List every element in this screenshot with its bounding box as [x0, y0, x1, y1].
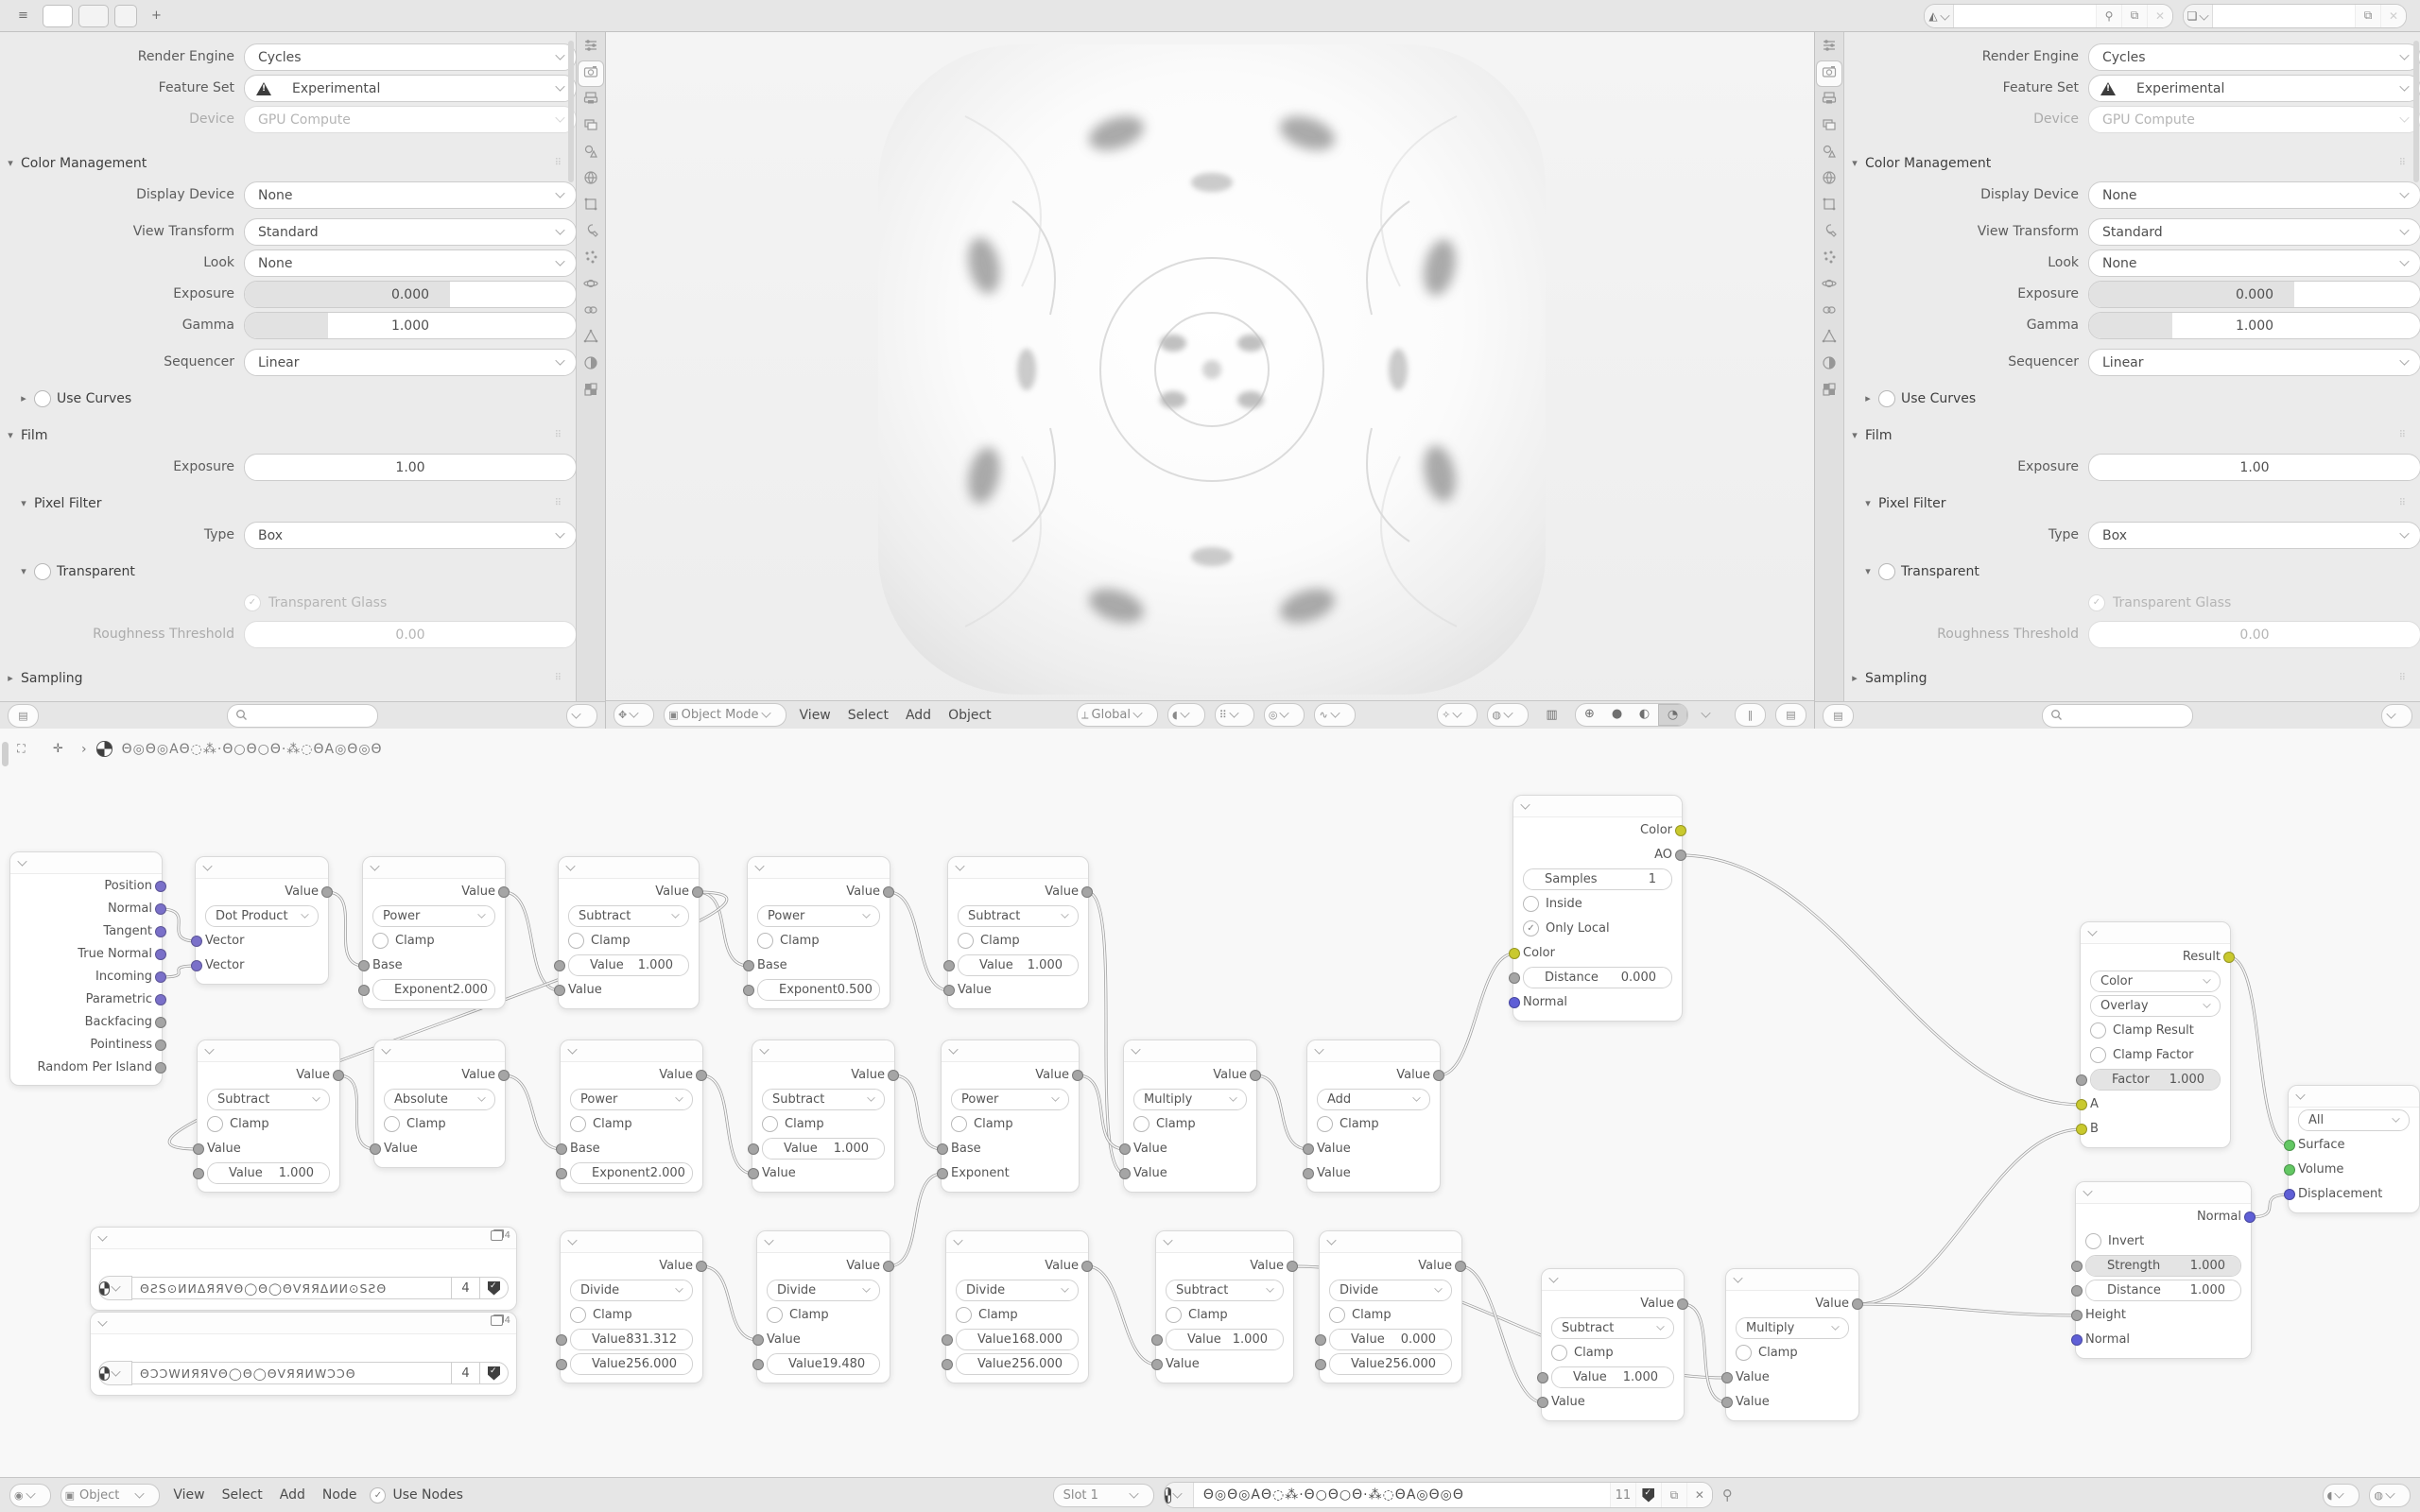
output-socket-incoming[interactable]	[155, 971, 166, 983]
checkbox[interactable]	[2090, 1047, 2106, 1063]
shading-rendered-icon[interactable]: ◔	[1658, 704, 1687, 726]
node-subA[interactable]: ValueSubtractClampValueValue1.000	[197, 1039, 340, 1193]
menu-select[interactable]: Select	[844, 708, 892, 723]
checkbox[interactable]	[1736, 1345, 1752, 1361]
checkbox[interactable]	[958, 933, 974, 949]
input-socket-value[interactable]	[554, 985, 565, 996]
input-socket-factor[interactable]	[2076, 1074, 2087, 1086]
node-header[interactable]	[1156, 1231, 1293, 1253]
filter-toggles-icon[interactable]: ▤	[1823, 704, 1854, 728]
checkbox[interactable]	[1878, 563, 1895, 580]
node-ao[interactable]: ColorAOSamples1Inside✓Only LocalColorDis…	[1512, 795, 1683, 1022]
node-header[interactable]	[748, 857, 890, 879]
transform-orientation-dropdown[interactable]: ⟂Global	[1077, 703, 1158, 727]
users-count-button[interactable]: 4	[452, 1362, 480, 1384]
node-dropdown[interactable]: Subtract	[1166, 1280, 1284, 1301]
node-dropdown[interactable]: Subtract	[568, 905, 689, 927]
node-subE[interactable]: ValueSubtractClampValue1.000Value	[1541, 1268, 1685, 1421]
dropdown-look[interactable]: None	[2088, 249, 2420, 277]
output-socket-value[interactable]	[333, 1070, 344, 1081]
input-socket-value[interactable]	[1303, 1143, 1314, 1155]
properties-tab-physics[interactable]	[579, 273, 603, 298]
slider-exposure[interactable]: 0.000	[244, 281, 576, 308]
input-socket-value[interactable]	[748, 1168, 759, 1179]
node-value-field[interactable]: Value256.000	[1329, 1353, 1452, 1375]
properties-tab-output[interactable]	[1817, 88, 1841, 112]
panel-header-pixel-filter[interactable]: ▾Pixel Filter⠿	[0, 488, 576, 519]
input-socket-exponent[interactable]	[556, 1168, 567, 1179]
panel-header-use-curves[interactable]: ▸Use Curves	[0, 383, 576, 414]
input-socket-value[interactable]	[942, 1334, 953, 1346]
node-header[interactable]	[752, 1040, 894, 1062]
checkbox[interactable]	[372, 933, 389, 949]
input-socket-value[interactable]	[748, 1143, 759, 1155]
checkbox[interactable]	[757, 933, 773, 949]
viewport-canvas[interactable]	[606, 31, 1814, 700]
checkbox[interactable]	[384, 1116, 400, 1132]
properties-tab-object[interactable]	[579, 194, 603, 218]
output-socket-value[interactable]	[321, 886, 333, 898]
output-socket-value[interactable]	[888, 1070, 899, 1081]
snapping-magnet-icon[interactable]: ◖	[1167, 703, 1205, 727]
input-socket-value[interactable]	[1537, 1397, 1548, 1408]
properties-tab-viewlayer[interactable]	[579, 114, 603, 139]
properties-tab-material[interactable]	[579, 352, 603, 377]
menu-view[interactable]: View	[796, 708, 835, 723]
dropdown-type[interactable]: Box	[2088, 522, 2420, 549]
panel-header-pixel-filter[interactable]: ▾Pixel Filter⠿	[1844, 488, 2420, 519]
node-header[interactable]	[948, 857, 1088, 879]
node-texA[interactable]: 4ΘƧS⊙ИИΔЯЯVΘ◯Θ◯ΘVЯЯΔИИ⊙SƧΘ4	[90, 1227, 517, 1311]
node-dropdown[interactable]: Power	[951, 1089, 1069, 1110]
input-socket-value[interactable]	[193, 1143, 204, 1155]
copy-icon[interactable]: ⧉	[2121, 5, 2147, 27]
node-dropdown[interactable]: Divide	[1329, 1280, 1452, 1301]
input-socket-value[interactable]	[1537, 1372, 1548, 1383]
render-display-options-icon[interactable]: ▤	[1775, 703, 1806, 727]
datablock-name-field[interactable]: ΘƆƆWИЯЯVΘ◯Θ◯ΘVЯЯИWƆƆΘ	[132, 1362, 452, 1384]
input-socket-volume[interactable]	[2284, 1164, 2295, 1176]
node-mix[interactable]: ResultColorOverlayClamp ResultClamp Fact…	[2080, 921, 2231, 1148]
dropdown-view-transform[interactable]: Standard	[244, 218, 576, 246]
checkbox[interactable]	[1133, 1116, 1149, 1132]
input-socket-strength[interactable]	[2071, 1261, 2083, 1272]
input-socket-value[interactable]	[1151, 1359, 1163, 1370]
node-out[interactable]: AllSurfaceVolumeDisplacement	[2288, 1085, 2420, 1213]
output-socket-color[interactable]	[1675, 825, 1686, 836]
input-socket-value[interactable]	[556, 1334, 567, 1346]
move-icon[interactable]: ✛	[44, 738, 72, 760]
overlay-icon[interactable]: ◍	[2369, 1484, 2411, 1507]
input-socket-value[interactable]	[943, 985, 955, 996]
input-socket-surface[interactable]	[2284, 1140, 2295, 1151]
node-abs[interactable]: ValueAbsoluteClampValue	[373, 1039, 506, 1168]
panel-header-sampling[interactable]: ▸Sampling⠿	[1844, 662, 2420, 694]
shader-node-editor[interactable]: ⛶ ✛ › Θ◎Θ◎ΑΘ◌⁂·Θ○Θ○Θ·⁂◌ΘΑ◎Θ◎Θ PositionNo…	[0, 729, 2420, 1512]
properties-tab-data[interactable]	[1817, 326, 1841, 351]
checkbox[interactable]: ✓	[2088, 594, 2105, 611]
close-icon[interactable]: ✕	[2147, 5, 2172, 27]
output-socket-value[interactable]	[1250, 1070, 1261, 1081]
properties-tab-tool[interactable]	[1817, 35, 1841, 60]
viewlayer-icon[interactable]: ❏	[2184, 5, 2213, 27]
node-header[interactable]	[2076, 1182, 2251, 1204]
scene-icon[interactable]: ◭	[1925, 5, 1954, 27]
pause-button[interactable]: ‖	[1735, 703, 1766, 727]
input-socket-normal[interactable]	[1509, 997, 1520, 1008]
dropdown-display-device[interactable]: None	[2088, 181, 2420, 209]
node-dropdown[interactable]: Add	[1317, 1089, 1430, 1110]
pin-icon[interactable]: ⚲	[1722, 1486, 1733, 1503]
properties-tab-particles[interactable]	[1817, 247, 1841, 271]
node-value-field[interactable]: Value1.000	[1551, 1366, 1674, 1388]
dropdown-view-transform[interactable]: Standard	[2088, 218, 2420, 246]
node-dropdown[interactable]: Color	[2090, 971, 2221, 992]
3d-viewport-editor-icon[interactable]: ✥	[614, 703, 654, 727]
input-socket-value[interactable]	[1315, 1334, 1326, 1346]
node-dropdown[interactable]: Absolute	[384, 1089, 495, 1110]
workspace-tab-2[interactable]	[78, 5, 109, 27]
menu-object[interactable]: Object	[944, 708, 995, 723]
output-socket-value[interactable]	[1455, 1261, 1466, 1272]
search-input[interactable]	[227, 704, 378, 728]
node-sub1b[interactable]: ValueSubtractClampValue1.000Value	[947, 856, 1089, 1009]
checkbox[interactable]: ✓	[244, 594, 261, 611]
node-dropdown[interactable]: Subtract	[207, 1089, 330, 1110]
output-socket-normal[interactable]	[155, 903, 166, 915]
checkbox[interactable]	[2085, 1233, 2101, 1249]
node-header[interactable]	[559, 857, 699, 879]
pin-icon[interactable]: ⚲	[2096, 5, 2121, 27]
dropdown-sequencer[interactable]: Linear	[244, 349, 576, 376]
snap-target-icon[interactable]: ⠿	[1215, 703, 1254, 727]
input-socket-distance[interactable]	[2071, 1285, 2083, 1297]
output-socket-value[interactable]	[1081, 886, 1093, 898]
use-nodes-toggle[interactable]: ✓Use Nodes	[370, 1487, 462, 1503]
node-value-field[interactable]: Factor1.000	[2090, 1069, 2221, 1091]
node-header[interactable]	[198, 1040, 339, 1062]
node-header[interactable]	[2289, 1086, 2419, 1108]
node-header[interactable]	[2081, 922, 2230, 944]
output-socket-backfacing[interactable]	[155, 1017, 166, 1028]
checkbox[interactable]	[956, 1307, 972, 1323]
slider-exposure[interactable]: 0.000	[2088, 281, 2420, 308]
checkbox[interactable]	[1329, 1307, 1345, 1323]
dropdown-device[interactable]: GPU Compute	[244, 106, 576, 133]
node-dropdown[interactable]: Subtract	[762, 1089, 885, 1110]
falloff-curve-icon[interactable]: ∿	[1314, 703, 1355, 727]
shading-solid-icon[interactable]: ●	[1603, 704, 1631, 724]
properties-tab-scene[interactable]	[579, 141, 603, 165]
node-dropdown[interactable]: Divide	[767, 1280, 880, 1301]
output-socket-value[interactable]	[498, 886, 510, 898]
workspace-tab-1[interactable]	[43, 5, 73, 27]
panel-header-color-management[interactable]: ▾Color Management⠿	[0, 147, 576, 179]
checkbox[interactable]	[951, 1116, 967, 1132]
input-socket-value[interactable]	[193, 1168, 204, 1179]
properties-tab-output[interactable]	[579, 88, 603, 112]
menu-view[interactable]: View	[169, 1487, 208, 1503]
properties-tab-data[interactable]	[579, 326, 603, 351]
node-geo[interactable]: PositionNormalTangentTrue NormalIncoming…	[9, 851, 163, 1086]
properties-tab-object[interactable]	[1817, 194, 1841, 218]
workspace-tab-3[interactable]	[114, 5, 137, 27]
node-value-field[interactable]: Strength1.000	[2085, 1255, 2241, 1277]
mode-dropdown[interactable]: ▣Object Mode	[664, 703, 786, 727]
slider-exposure[interactable]: 1.00	[2088, 454, 2420, 481]
node-bump[interactable]: NormalInvertStrength1.000Distance1.000He…	[2075, 1181, 2252, 1359]
checkbox[interactable]	[762, 1116, 778, 1132]
menu-add[interactable]: Add	[276, 1487, 309, 1503]
input-socket-value[interactable]	[943, 960, 955, 971]
filter-toggles-icon[interactable]: ▤	[8, 704, 39, 728]
input-socket-base[interactable]	[743, 960, 754, 971]
node-dropdown[interactable]: Divide	[956, 1280, 1079, 1301]
output-socket-value[interactable]	[1072, 1070, 1083, 1081]
node-header[interactable]	[363, 857, 505, 879]
output-socket-tangent[interactable]	[155, 926, 166, 937]
input-socket-color[interactable]	[1509, 948, 1520, 959]
proportional-editing-icon[interactable]: ◎	[1264, 703, 1305, 727]
properties-tab-modifiers[interactable]	[579, 220, 603, 245]
node-divA[interactable]: ValueDivideClampValue831.312Value256.000	[560, 1230, 703, 1383]
output-socket-result[interactable]	[2223, 952, 2235, 963]
dropdown-type[interactable]: Box	[244, 522, 576, 549]
node-divD[interactable]: ValueDivideClampValue0.000Value256.000	[1319, 1230, 1462, 1383]
output-socket-value[interactable]	[1852, 1298, 1863, 1310]
node-dropdown[interactable]: Subtract	[1551, 1317, 1674, 1339]
add-workspace-button[interactable]: +	[143, 5, 170, 26]
node-dot[interactable]: ValueDot ProductVectorVector	[195, 856, 329, 985]
panel-header-transparent[interactable]: ▾Transparent	[1844, 556, 2420, 587]
panel-header-sampling[interactable]: ▸Sampling⠿	[0, 662, 576, 694]
dropdown-device[interactable]: GPU Compute	[2088, 106, 2420, 133]
node-powB[interactable]: ValuePowerClampBaseExponent2.000	[560, 1039, 703, 1193]
close-icon[interactable]: ✕	[1686, 1483, 1712, 1507]
panel-header-use-curves[interactable]: ▸Use Curves	[1844, 383, 2420, 414]
node-header[interactable]	[757, 1231, 890, 1253]
node-header[interactable]	[561, 1231, 702, 1253]
input-socket-base[interactable]	[937, 1143, 948, 1155]
input-socket-value[interactable]	[1119, 1143, 1131, 1155]
checkbox[interactable]	[1523, 896, 1539, 912]
input-socket-exponent[interactable]	[743, 985, 754, 996]
select-box-icon[interactable]: ⛶	[8, 738, 35, 760]
checkbox[interactable]	[34, 563, 51, 580]
output-socket-value[interactable]	[498, 1070, 510, 1081]
material-name-field[interactable]: Θ◎Θ◎ΑΘ◌⁂·Θ○Θ○Θ·⁂◌ΘΑ◎Θ◎Θ	[1194, 1483, 1610, 1507]
checkbox[interactable]: ✓	[1523, 920, 1539, 936]
dropdown-feature-set[interactable]: Experimental	[244, 75, 576, 102]
properties-tab-constraints[interactable]	[579, 300, 603, 324]
node-value-field[interactable]: Distance1.000	[2085, 1280, 2241, 1301]
output-socket-value[interactable]	[1677, 1298, 1688, 1310]
viewlayer-selector[interactable]: ❏ ⧉ ✕	[2183, 4, 2407, 28]
node-header[interactable]	[946, 1231, 1088, 1253]
node-dropdown[interactable]: Multiply	[1133, 1089, 1247, 1110]
node-dropdown[interactable]: Subtract	[958, 905, 1079, 927]
properties-tab-world[interactable]	[1817, 167, 1841, 192]
node-dropdown[interactable]: Multiply	[1736, 1317, 1849, 1339]
hamburger-menu-icon[interactable]: ≡	[9, 5, 37, 26]
node-value-field[interactable]: Value1.000	[207, 1162, 330, 1184]
node-header[interactable]	[561, 1040, 702, 1062]
input-socket-value[interactable]	[370, 1143, 381, 1155]
node-value-field[interactable]: Distance0.000	[1523, 967, 1672, 988]
fake-user-shield-icon[interactable]	[1635, 1483, 1661, 1507]
input-socket-base[interactable]	[358, 960, 370, 971]
browse-material-icon[interactable]	[98, 1276, 132, 1300]
users-count-button[interactable]: 4	[452, 1277, 480, 1299]
node-header[interactable]	[1542, 1269, 1684, 1291]
node-dropdown[interactable]: All	[2298, 1109, 2410, 1131]
input-socket-vector[interactable]	[191, 960, 202, 971]
output-socket-pointiness[interactable]	[155, 1039, 166, 1051]
properties-tab-texture[interactable]	[1817, 379, 1841, 404]
input-socket-value[interactable]	[1151, 1334, 1163, 1346]
output-socket-random-per-island[interactable]	[155, 1062, 166, 1074]
node-value-field[interactable]: Value168.000	[956, 1329, 1079, 1350]
input-socket-base[interactable]	[556, 1143, 567, 1155]
node-value-field[interactable]: Value1.000	[762, 1138, 885, 1160]
checkbox[interactable]	[1878, 390, 1895, 407]
toggle-xray-icon[interactable]: ▥	[1538, 704, 1565, 726]
output-socket-value[interactable]	[696, 1070, 707, 1081]
node-pow2[interactable]: ValuePowerClampBaseExponent2.000	[362, 856, 506, 1009]
properties-tab-render[interactable]	[579, 61, 603, 86]
node-header[interactable]	[1307, 1040, 1440, 1062]
viewlayer-name-field[interactable]	[2213, 5, 2355, 27]
checkbox[interactable]	[570, 1116, 586, 1132]
node-header[interactable]	[374, 1040, 505, 1062]
node-subC[interactable]: ValueSubtractClampValue1.000Value	[752, 1039, 895, 1193]
node-mulA[interactable]: ValueMultiplyClampValueValue	[1123, 1039, 1257, 1193]
slider-exposure[interactable]: 1.00	[244, 454, 576, 481]
node-header[interactable]	[1513, 796, 1682, 817]
show-overlays-icon[interactable]: ◍	[1487, 703, 1529, 727]
snapping-magnet-icon[interactable]: ◖	[2323, 1484, 2360, 1507]
scrollbar[interactable]	[568, 41, 574, 182]
node-dropdown[interactable]: Dot Product	[205, 905, 319, 927]
input-socket-b[interactable]	[2076, 1124, 2087, 1135]
checkbox[interactable]	[34, 390, 51, 407]
slot-dropdown[interactable]: Slot 1	[1053, 1484, 1154, 1507]
panel-header-color-management[interactable]: ▾Color Management⠿	[1844, 147, 2420, 179]
checkbox[interactable]	[207, 1116, 223, 1132]
fake-user-shield-icon[interactable]	[480, 1277, 509, 1299]
node-sub1[interactable]: ValueSubtractClampValue1.000Value	[558, 856, 700, 1009]
panel-header-film[interactable]: ▾Film⠿	[0, 420, 576, 451]
browse-material-icon[interactable]	[98, 1361, 132, 1385]
properties-tab-material[interactable]	[1817, 352, 1841, 377]
checkbox[interactable]	[767, 1307, 783, 1323]
node-value-field[interactable]: Exponent0.500	[757, 979, 880, 1001]
node-value-field[interactable]: Value19.480	[767, 1353, 880, 1375]
dropdown-render-engine[interactable]: Cycles	[2088, 43, 2420, 71]
panel-header-transparent[interactable]: ▾Transparent	[0, 556, 576, 587]
node-pow05[interactable]: ValuePowerClampBaseExponent0.500	[747, 856, 890, 1009]
scrollbar[interactable]	[2413, 41, 2419, 182]
shader-editor-icon[interactable]: ◉	[9, 1484, 51, 1507]
input-socket-a[interactable]	[2076, 1099, 2087, 1110]
properties-tab-viewlayer[interactable]	[1817, 114, 1841, 139]
output-socket-parametric[interactable]	[155, 994, 166, 1005]
output-socket-value[interactable]	[1287, 1261, 1298, 1272]
properties-tab-particles[interactable]	[579, 247, 603, 271]
node-value-field[interactable]: Exponent2.000	[570, 1162, 693, 1184]
panel-header-film[interactable]: ▾Film⠿	[1844, 420, 2420, 451]
node-header[interactable]	[942, 1040, 1079, 1062]
node-divB[interactable]: ValueDivideClampValueValue19.480	[756, 1230, 890, 1383]
node-header[interactable]	[10, 852, 162, 874]
node-value-field[interactable]: Value1.000	[958, 954, 1079, 976]
node-header[interactable]: 4	[91, 1313, 516, 1334]
chevron-down-icon[interactable]	[2381, 704, 2412, 728]
node-value-field[interactable]: Value256.000	[956, 1353, 1079, 1375]
input-socket-value[interactable]	[1303, 1168, 1314, 1179]
menu-add[interactable]: Add	[902, 708, 935, 723]
dropdown-display-device[interactable]: None	[244, 181, 576, 209]
node-texB[interactable]: 4ΘƆƆWИЯЯVΘ◯Θ◯ΘVЯЯИWƆƆΘ4	[90, 1312, 517, 1396]
slider-roughness-threshold[interactable]: 0.00	[244, 621, 576, 648]
shading-material-preview-icon[interactable]: ◐	[1631, 704, 1658, 724]
node-header[interactable]: 4	[91, 1228, 516, 1249]
menu-node[interactable]: Node	[319, 1487, 361, 1503]
input-socket-exponent[interactable]	[358, 985, 370, 996]
show-gizmo-icon[interactable]: ✧	[1437, 703, 1478, 727]
node-header[interactable]	[196, 857, 328, 879]
node-dropdown[interactable]: Power	[372, 905, 495, 927]
properties-tab-render[interactable]	[1817, 61, 1841, 86]
slider-roughness-threshold[interactable]: 0.00	[2088, 621, 2420, 648]
node-dropdown[interactable]: Overlay	[2090, 995, 2221, 1017]
node-value-field[interactable]: Samples1	[1523, 868, 1672, 890]
fake-user-shield-icon[interactable]	[480, 1362, 509, 1384]
slider-gamma[interactable]: 1.000	[244, 312, 576, 339]
output-socket-true-normal[interactable]	[155, 949, 166, 960]
dropdown-render-engine[interactable]: Cycles	[244, 43, 576, 71]
node-value-field[interactable]: Value0.000	[1329, 1329, 1452, 1350]
dropdown-feature-set[interactable]: Experimental	[2088, 75, 2420, 102]
properties-tab-constraints[interactable]	[1817, 300, 1841, 324]
checkbox[interactable]	[570, 1307, 586, 1323]
slider-gamma[interactable]: 1.000	[2088, 312, 2420, 339]
output-socket-normal[interactable]	[2244, 1211, 2256, 1223]
scene-selector[interactable]: ◭ ⚲ ⧉ ✕	[1924, 4, 2173, 28]
checkbox[interactable]	[2090, 1022, 2106, 1039]
input-socket-value[interactable]	[1721, 1372, 1733, 1383]
properties-tab-world[interactable]	[579, 167, 603, 192]
input-socket-distance[interactable]	[1509, 972, 1520, 984]
scene-name-field[interactable]	[1954, 5, 2096, 27]
input-socket-normal[interactable]	[2071, 1334, 2083, 1346]
search-input[interactable]	[2042, 704, 2193, 728]
node-subD[interactable]: ValueSubtractClampValue1.000Value	[1155, 1230, 1294, 1383]
copy-icon[interactable]: ⧉	[2355, 5, 2380, 27]
output-socket-value[interactable]	[1081, 1261, 1093, 1272]
properties-tab-texture[interactable]	[579, 379, 603, 404]
output-socket-value[interactable]	[696, 1261, 707, 1272]
node-dropdown[interactable]: Power	[757, 905, 880, 927]
output-socket-position[interactable]	[155, 881, 166, 892]
node-dropdown[interactable]: Power	[570, 1089, 693, 1110]
menu-select[interactable]: Select	[218, 1487, 267, 1503]
node-header[interactable]	[1124, 1040, 1256, 1062]
browse-material-icon[interactable]	[1165, 1483, 1194, 1507]
input-socket-vector[interactable]	[191, 936, 202, 947]
datablock-name-field[interactable]: ΘƧS⊙ИИΔЯЯVΘ◯Θ◯ΘVЯЯΔИИ⊙SƧΘ	[132, 1277, 452, 1299]
output-socket-value[interactable]	[883, 1261, 894, 1272]
